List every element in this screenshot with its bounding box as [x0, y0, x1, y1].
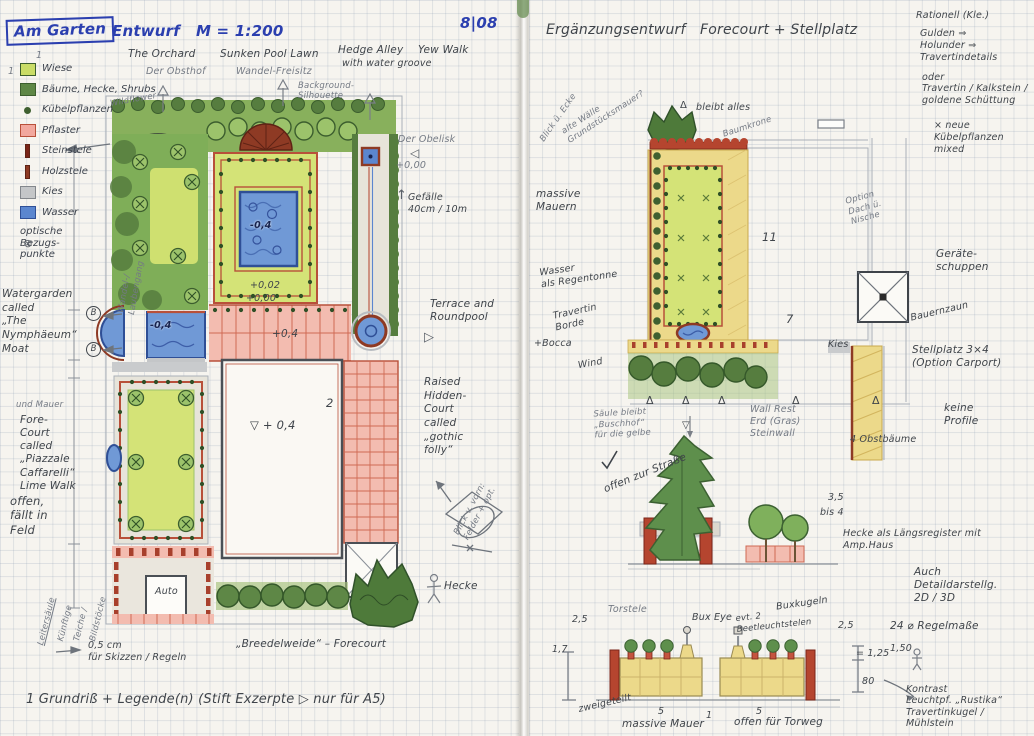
area-orchard-en: The Orchard: [128, 48, 196, 61]
height-125: = 1,25: [856, 648, 889, 660]
area-pool-lawn-de: Wandel-Freisitz: [236, 66, 312, 78]
area-pool-lawn-en: Sunken Pool Lawn: [220, 48, 319, 61]
section-marker-b2: B: [86, 342, 101, 357]
pool-level: -0,4: [250, 220, 272, 232]
elev-seg-gap: 1: [706, 710, 712, 722]
value-11: 11: [762, 230, 777, 244]
kies-swatch: [20, 186, 36, 199]
date-note: 8|08: [460, 14, 498, 33]
corner-lines: Gulden ⇒ Holunder ⇒ Travertindetails: [920, 28, 997, 64]
legend-item-kies: Kies: [20, 185, 156, 199]
footer-scale-note: 0,5 cm für Skizzen / Regeln: [88, 640, 187, 664]
note-massive: massive Mauern: [536, 188, 581, 214]
area-background: Background- Silhouette: [298, 82, 354, 102]
legend-item-pflaster: Pflaster: [20, 124, 156, 138]
arrow-up-icon: ↑: [396, 188, 407, 203]
delta-icon-2: Δ: [682, 394, 690, 407]
kuebel-swatch: [24, 107, 31, 114]
regelmass-note: 24 ⌀ Regelmaße: [890, 620, 979, 633]
lawn-level-zero: +0,00: [246, 293, 276, 305]
note-bocca: +Bocca: [534, 338, 572, 350]
arrow-left-icon: ◁: [410, 146, 419, 160]
legend: Wiese Bäume, Hecke, Shrubs Kübelpflanzen…: [20, 62, 156, 261]
court-level: ▽ + 0,4: [250, 418, 295, 432]
right-subtitle: Forecourt + Stellplatz: [700, 22, 857, 40]
right-title: Ergänzungsentwurf: [546, 22, 686, 40]
legend-label: Holzstele: [42, 166, 88, 178]
terrace-label: Terrace and Roundpool: [430, 298, 494, 324]
area-orchard-de: Der Obsthof: [146, 66, 206, 78]
note-bleibt: bleibt alles: [696, 102, 750, 114]
height-35: 3,5: [828, 492, 844, 504]
section-number: 2: [326, 396, 334, 410]
height-bis4: bis 4: [820, 507, 844, 519]
note-kuebel: × neue Kübelpflanzen mixed: [934, 120, 1004, 156]
gefaelle-note: Gefälle 40cm / 10m: [408, 192, 467, 216]
area-yew-walk: Yew Walk: [418, 44, 469, 57]
elev-d-left: 2,5: [572, 614, 588, 626]
section-marker-b1: B: [86, 306, 101, 321]
elev-offen: offen für Torweg: [734, 716, 823, 729]
offen-note: offen, fällt in Feld: [10, 494, 48, 537]
note-material: oder Travertin / Kalkstein / goldene Sch…: [922, 72, 1028, 106]
forecourt-label: Fore- Court called „Piazzale Caffarelli“…: [20, 414, 76, 493]
height-80: 80: [862, 676, 875, 688]
note-geraete: Geräte- schuppen: [936, 248, 989, 274]
delta-icon-5: Δ: [872, 394, 880, 407]
obelisk-label: Der Obelisk: [398, 134, 455, 146]
steinstele-swatch: [25, 144, 30, 158]
note-keine-profile: keine Profile: [944, 402, 978, 428]
legend-label: Steinstele: [42, 145, 92, 157]
legend-label: Wiese: [42, 63, 72, 75]
kontrast-note: Kontrast Leuchtpf. „Rustika“ Travertinku…: [906, 684, 1002, 730]
scale-note: M = 1:200: [196, 22, 284, 41]
legend-index: 1: [36, 50, 42, 62]
pflaster-swatch: [20, 124, 36, 137]
delta-icon-top: Δ: [680, 100, 687, 111]
value-7: 7: [786, 312, 794, 326]
delta-icon-3: Δ: [718, 394, 726, 407]
elev-torstele: Torstele: [608, 604, 647, 616]
elev-mauer: massive Mauer: [622, 718, 704, 731]
wiese-swatch: [20, 63, 36, 76]
legend-label: Kübelpflanzen: [42, 104, 113, 116]
opt-marker-icon: ⊗: [20, 237, 36, 250]
wasser-swatch: [20, 206, 36, 219]
detail-note: Auch Detaildarstellg. 2D / 3D: [914, 566, 997, 605]
holzstele-swatch: [25, 165, 30, 179]
area-water-groove: with water groove: [342, 58, 432, 70]
legend-label: Wasser: [42, 207, 78, 219]
mauer-note: und Mauer: [16, 400, 63, 411]
legend-item-holzstele: Holzstele: [20, 165, 156, 179]
elev-d-17: 1,7: [552, 644, 568, 656]
footer-breede: „Breedelweide“ – Forecourt: [236, 638, 386, 651]
note-kies: Kies: [828, 339, 848, 351]
page-gutter: [515, 0, 531, 736]
legend-label: Pflaster: [42, 125, 80, 137]
corner-head: Rationell (Kle.): [916, 10, 989, 22]
legend-item-wiese: Wiese: [20, 62, 156, 76]
green-smudge: [517, 0, 529, 18]
arrow-forward-icon: ▷: [424, 330, 434, 345]
terrace-level: +0,4: [272, 328, 298, 341]
hecke-swatch: [20, 83, 36, 96]
legend-item-optik: ⊗ optische Bezugs- punkte: [20, 226, 156, 261]
delta-icon-1: Δ: [646, 394, 654, 407]
watergarden-label: Watergarden called „The Nymphäeum“ Moat: [2, 288, 77, 356]
doc-type: Entwurf: [112, 22, 180, 41]
legend-index-2: 1: [8, 66, 14, 78]
elev-buxeye: Bux Eye: [692, 612, 732, 624]
legend-item-wasser: Wasser: [20, 206, 156, 220]
harmony-note: Hecke als Längsregister mit Amp.Haus: [843, 528, 1034, 552]
auto-label: Auto: [155, 586, 178, 598]
project-title: Am Garten: [6, 16, 115, 46]
note-obstbaeume: 4 Obstbäume: [850, 434, 916, 446]
elev-seg-a: 5: [658, 706, 664, 718]
scanned-garden-plan: Am Garten Entwurf M = 1:200 8|08 1 1 Wie…: [0, 0, 1034, 736]
moat-level: -0,4: [150, 320, 172, 332]
footer-caption: 1 Grundriß + Legende(n) (Stift Exzerpte …: [26, 692, 386, 708]
note-stellplatz: Stellplatz 3×4 (Option Carport): [912, 344, 1001, 370]
hidden-court-label: Raised Hidden- Court called „gothic foll…: [424, 376, 466, 458]
area-hedge-alley: Hedge Alley: [338, 44, 403, 57]
datum-value: +0,00: [396, 160, 426, 172]
height-150: 1,50: [890, 643, 912, 655]
legend-label: Kies: [42, 186, 63, 198]
elev-d-right: 2,5: [838, 620, 854, 632]
legend-item-steinstele: Steinstele: [20, 144, 156, 158]
hecke-label: Hecke: [444, 580, 478, 593]
lawn-level-upper: +0,02: [250, 280, 280, 292]
nabla-icon: ▽: [682, 420, 690, 431]
note-saeule: Säule bleibt „Buschhof“ für die gelbe: [593, 407, 651, 442]
note-wallrest: Wall Rest Erd (Gras) Steinwall: [750, 404, 800, 440]
